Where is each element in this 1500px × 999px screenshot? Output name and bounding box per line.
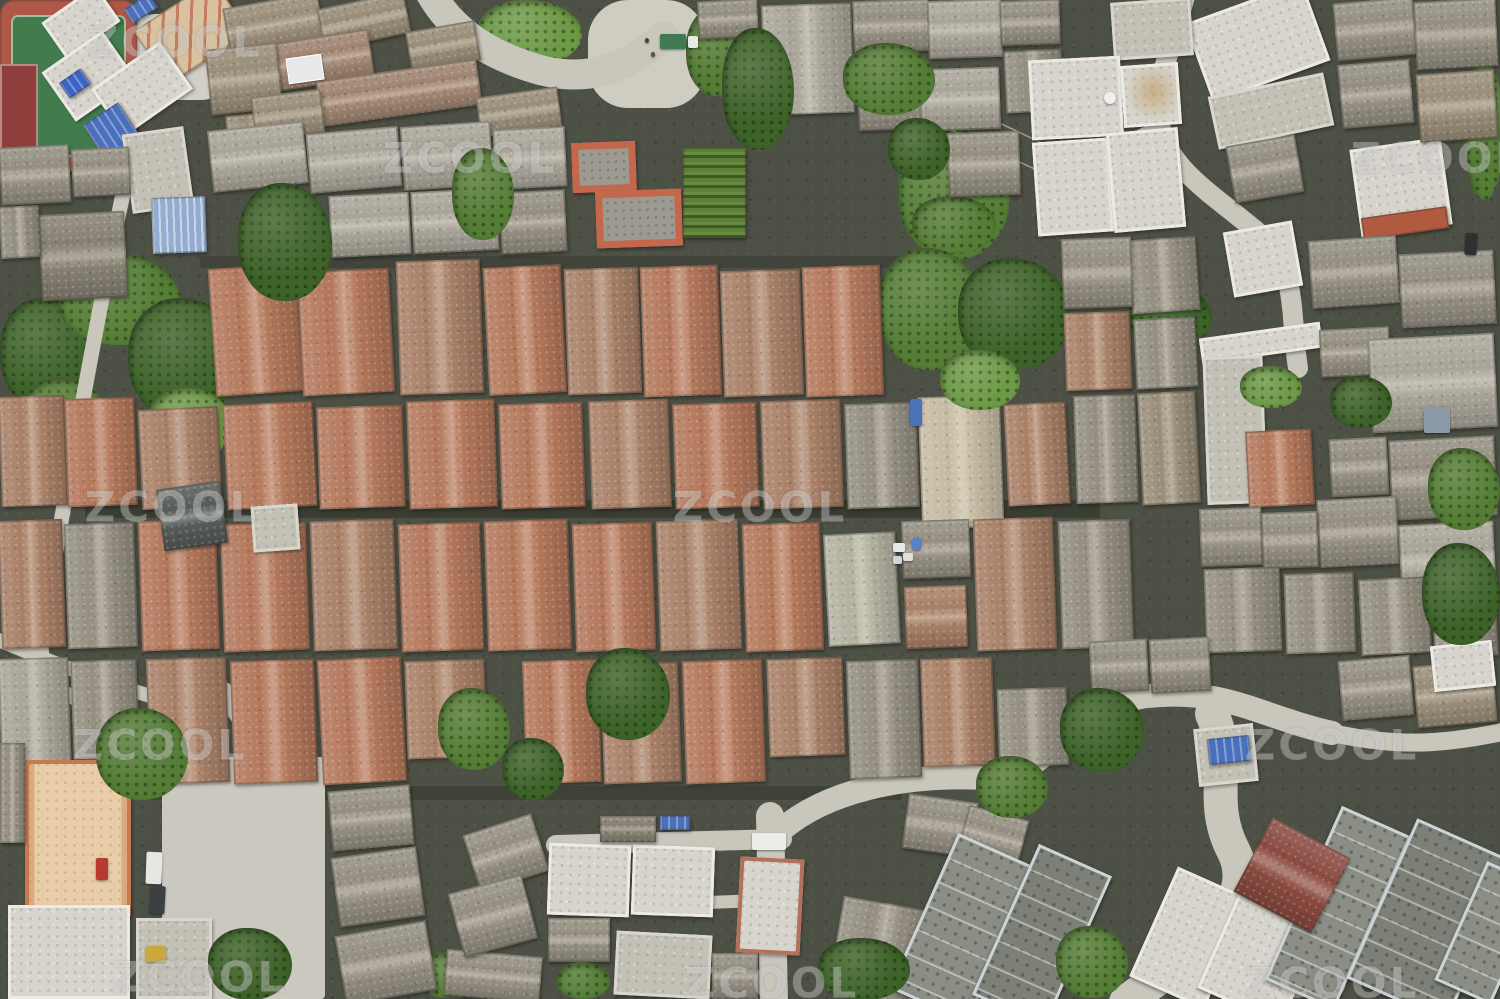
tiled-roof-gray-weathered [328, 785, 415, 852]
tiled-roof-old [1137, 391, 1201, 506]
watermark-text: ZCOOL [685, 959, 859, 999]
tiled-roof-gray-weathered [1337, 59, 1414, 129]
watermark-text: ZCOOL [383, 134, 557, 183]
tiled-roof-gray-weathered [64, 522, 138, 649]
tiled-roof-gray-weathered [1089, 639, 1150, 694]
tiled-roof-terracotta-weathered [1003, 401, 1070, 506]
tiled-roof-gray [207, 121, 309, 193]
ruined-roof [38, 211, 128, 301]
tiled-roof-gray-weathered [1308, 235, 1401, 309]
tiled-roof-gray-weathered [548, 918, 610, 962]
tiled-roof-gray-weathered [1133, 316, 1199, 389]
vegetable-garden [683, 148, 746, 238]
concrete-rooftop [1223, 220, 1303, 297]
watermark-text: ZCOOL [88, 18, 262, 67]
concrete-rooftop-stained [1120, 62, 1182, 128]
tiled-roof-gray-weathered [331, 846, 426, 927]
concrete-rooftop-brick-edge [736, 856, 805, 955]
rooftop-tank [903, 553, 913, 561]
tiled-roof-terracotta [640, 265, 722, 398]
tiled-roof-gray-weathered [844, 402, 920, 509]
tree-canopy [722, 28, 794, 150]
concrete-rooftop [1106, 127, 1186, 233]
car-dark [1464, 233, 1478, 256]
rooftop-tank [893, 556, 902, 564]
person [651, 52, 655, 57]
tiled-roof-terracotta-weathered [904, 585, 968, 649]
tree-canopy [238, 183, 332, 301]
tiled-roof-gray-weathered [0, 144, 71, 206]
satellite-dish [1104, 92, 1116, 104]
tiled-roof-terracotta-weathered [720, 269, 804, 398]
tiled-roof-gray-weathered [999, 0, 1061, 46]
tiled-roof-gray-weathered [1261, 511, 1319, 569]
person [645, 38, 649, 43]
tiled-roof-gray-weathered [1284, 572, 1357, 654]
tiled-roof-terracotta [498, 402, 586, 510]
tiled-roof-gray-weathered [846, 659, 922, 779]
tiled-roof-gray-weathered [1333, 0, 1418, 61]
tiled-roof-terracotta [406, 398, 498, 509]
tree-canopy [976, 756, 1048, 818]
tiled-roof-pale [823, 531, 901, 647]
tiled-roof-gray-weathered [1225, 134, 1304, 203]
tree-canopy [438, 688, 510, 770]
tiled-roof-terracotta [316, 405, 406, 510]
metal-panel [1424, 407, 1450, 433]
tree-canopy [586, 648, 670, 740]
tiled-roof-terracotta-weathered [396, 259, 485, 396]
car-white [145, 852, 162, 885]
tree-canopy [502, 738, 564, 800]
tiled-roof-terracotta [572, 522, 656, 653]
van-white [752, 833, 786, 850]
tiled-roof-terracotta-weathered [766, 657, 845, 758]
truck-green [660, 34, 686, 49]
tiled-roof-terracotta-weathered [310, 519, 398, 652]
tiled-roof-gray-weathered [0, 743, 25, 843]
aerial-photograph: ZCOOLZCOOLZCOOLZCOOLZCOOLZCOOLZCOOLZCOOL… [0, 0, 1500, 999]
tiled-roof-gray-weathered [1149, 636, 1212, 693]
tree-canopy [843, 43, 935, 115]
tiled-roof-terracotta-weathered [656, 519, 742, 652]
concrete-rooftop [8, 905, 130, 999]
tiled-roof-old [1416, 69, 1499, 142]
tiled-roof-terracotta-weathered [920, 657, 996, 767]
watermark-text: ZCOOL [113, 953, 287, 999]
tiled-roof-terracotta [484, 519, 572, 652]
watermark-text: ZCOOL [1245, 721, 1419, 770]
tiled-roof-gray [927, 0, 1003, 59]
tree-canopy [1240, 366, 1302, 408]
tiled-roof-terracotta-weathered [564, 267, 642, 396]
white-tarp [285, 54, 324, 85]
tiled-roof-terracotta [802, 265, 884, 398]
tiled-roof-gray-weathered [1199, 507, 1263, 567]
tree-canopy [940, 350, 1020, 410]
tree-canopy [1428, 448, 1500, 530]
basketball-court [0, 64, 38, 154]
watermark-text: ZCOOL [1245, 959, 1419, 999]
tiled-roof-gray-weathered [1329, 437, 1390, 498]
tiled-roof-terracotta [682, 659, 766, 785]
tiled-roof-gray-weathered [1204, 567, 1283, 654]
blue-metal-roof [660, 816, 690, 830]
tiled-roof-gray [328, 192, 411, 258]
concrete-rooftop [631, 845, 715, 918]
tiled-roof-gray-weathered [1058, 519, 1134, 649]
tiled-roof-sand [918, 395, 1005, 530]
tree-canopy [1060, 688, 1144, 772]
red-parapet-rooftop [595, 189, 683, 249]
rooftop-tank [893, 543, 905, 552]
white-box [688, 36, 698, 48]
tiled-roof-terracotta [317, 656, 407, 785]
light-blue-corrugated-roof [151, 196, 207, 254]
tiled-roof-terracotta-weathered [973, 517, 1058, 652]
tiled-roof-gray-weathered [0, 205, 41, 259]
tiled-roof-terracotta [1245, 428, 1315, 507]
tiled-roof-gray-weathered [1316, 496, 1399, 568]
blue-tarp [910, 399, 922, 426]
tiled-roof-terracotta-weathered [588, 399, 672, 510]
car-dark [149, 886, 165, 915]
tiled-roof-gray-weathered [443, 949, 543, 999]
tree-canopy [556, 962, 610, 999]
watermark-text: ZCOOL [673, 483, 847, 532]
tiled-roof-terracotta-weathered [0, 519, 66, 649]
tiled-roof-gray-weathered [1398, 250, 1497, 329]
tiled-roof-terracotta [398, 522, 484, 653]
tiled-roof-terracotta-weathered [0, 395, 68, 507]
red-cart [96, 858, 108, 880]
watermark-text: ZCOOL [73, 721, 247, 770]
tiled-roof-gray-weathered [71, 147, 131, 198]
watermark-text: ZCOOL [1351, 134, 1500, 183]
tiled-roof-gray-weathered [1128, 236, 1201, 315]
tiled-roof-gray-weathered [1338, 655, 1415, 721]
tree-canopy [1422, 543, 1500, 645]
tree-canopy [1056, 926, 1128, 998]
tiled-roof-gray-weathered [1073, 394, 1139, 504]
tiled-roof-gray-weathered [947, 131, 1021, 197]
concrete-rooftop [547, 843, 631, 918]
tiled-roof-gray-weathered [1413, 0, 1498, 70]
tiled-roof-terracotta-weathered [1064, 311, 1133, 391]
red-parapet-rooftop [571, 141, 637, 193]
tiled-roof-terracotta [483, 264, 568, 396]
tree-canopy [888, 118, 950, 180]
ruined-roof [600, 816, 656, 842]
tiled-roof-terracotta [742, 522, 824, 653]
tree-canopy [1330, 376, 1392, 428]
concrete-rooftop [1032, 137, 1114, 236]
watermark-text: ZCOOL [85, 483, 259, 532]
concrete-rooftop [1430, 640, 1496, 692]
blue-barrel [912, 538, 921, 550]
concrete-rooftop-weathered [1110, 0, 1194, 61]
tiled-roof-gray-weathered [1061, 237, 1133, 309]
tiled-roof-gray-weathered [1358, 576, 1432, 656]
